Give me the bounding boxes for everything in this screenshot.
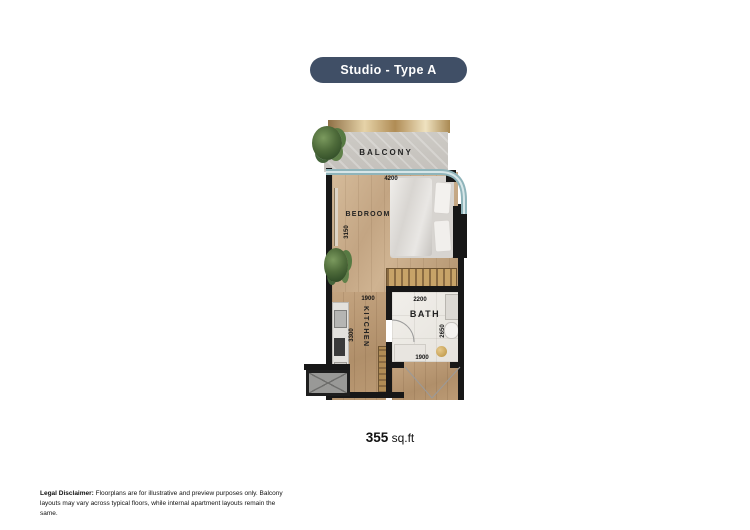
bath-label: BATH [404, 309, 446, 319]
mirror [334, 188, 338, 246]
dim-kitchen-depth: 3300 [349, 323, 355, 347]
dim-bedroom-width: 4200 [376, 176, 406, 182]
wall-bath-top [386, 286, 464, 292]
kitchen-hob [334, 338, 345, 356]
doormat [306, 370, 350, 396]
wall-column [453, 206, 467, 258]
toilet [444, 322, 459, 339]
wall-bath-left-upper [386, 286, 392, 320]
legal-disclaimer-label: Legal Disclaimer: [40, 490, 94, 497]
legal-disclaimer: Legal Disclaimer: Floorplans are for ill… [40, 489, 294, 519]
bed [390, 176, 454, 258]
bed-pillow [433, 181, 452, 214]
dim-kitchen-width: 1900 [354, 296, 382, 302]
bed-duvet [390, 178, 432, 256]
unit-type-label: Studio - Type A [340, 63, 436, 77]
balcony-label: BALCONY [359, 148, 413, 157]
kitchen-label: KITCHEN [362, 306, 369, 354]
bed-pillow [433, 219, 452, 252]
wall-bath-left-lower [386, 342, 392, 394]
unit-type-button[interactable]: Studio - Type A [310, 57, 467, 83]
area-unit: sq.ft [392, 431, 415, 445]
wall-bath-bottom-right [450, 362, 464, 368]
area-value: 355 [366, 430, 389, 445]
nightstand [446, 170, 456, 182]
dim-bedroom-depth: 3150 [344, 220, 350, 244]
floorplan: BALCONY BEDROOM KITCHEN [298, 110, 478, 410]
brass-basin [436, 346, 447, 357]
plant-icon [312, 126, 342, 160]
dim-bath-depth: 2650 [440, 319, 446, 343]
kitchen-sink [334, 310, 347, 328]
area-text: 355 sq.ft [300, 430, 480, 445]
wall-bath-bottom-left [392, 362, 404, 368]
room-balcony: BALCONY [324, 132, 448, 172]
bedroom-label: BEDROOM [344, 211, 392, 218]
plant-icon [324, 248, 348, 282]
page: { "title": "Studio - Type A", "plan": { … [0, 0, 750, 530]
dim-bath-bottom: 1900 [408, 355, 436, 361]
dim-bath-width: 2200 [406, 297, 434, 303]
